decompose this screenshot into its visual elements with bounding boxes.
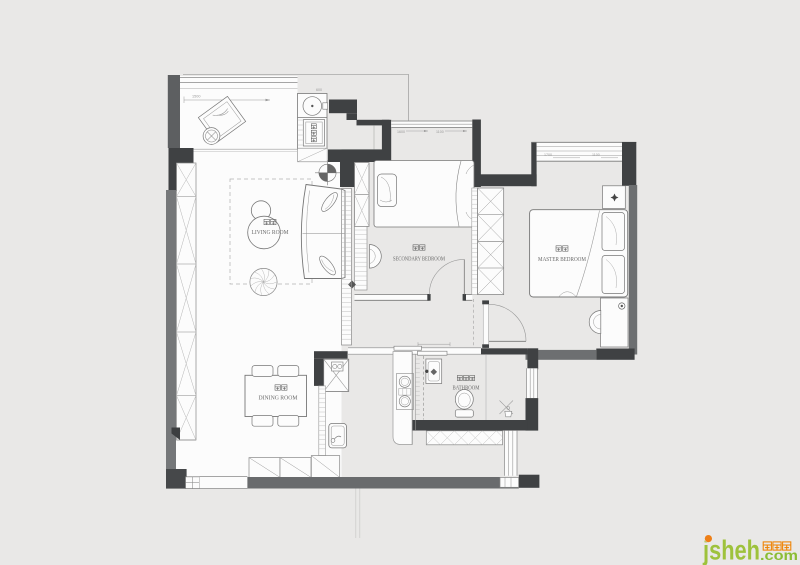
svg-text:1700: 1700 [544,153,552,157]
svg-text:SECONDARY BEDROOM: SECONDARY BEDROOM [393,257,445,263]
svg-text:1100: 1100 [436,130,444,134]
svg-text:1100: 1100 [592,153,600,157]
svg-text:1600: 1600 [397,130,405,134]
svg-text:1500: 1500 [192,95,200,99]
svg-text:MASTER BEDROOM: MASTER BEDROOM [538,257,586,263]
svg-text:600: 600 [316,88,322,92]
svg-text:DINING ROOM: DINING ROOM [259,396,298,402]
svg-text:.com: .com [760,547,798,563]
svg-text:LIVING ROOM: LIVING ROOM [252,230,289,236]
